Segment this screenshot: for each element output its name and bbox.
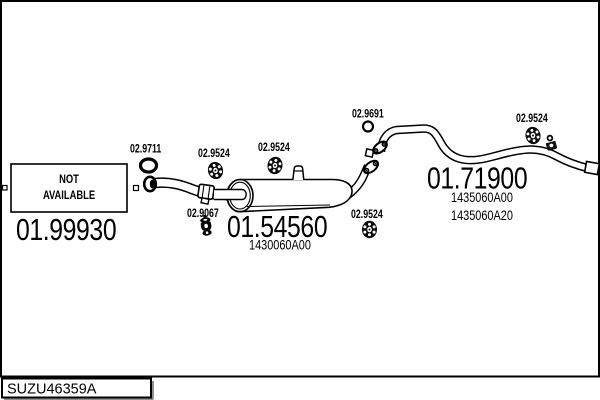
part-number-clamp-mid[interactable]: 02.9524	[258, 141, 290, 155]
front-exhaust-group: NOT AVAILABLE 01.99930	[11, 164, 127, 247]
gasket-ring-icon-rear	[363, 122, 373, 132]
part-number-front-exhaust[interactable]: 01.99930	[16, 212, 116, 246]
pipe-sleeve-clamp-icon	[198, 184, 215, 199]
clamp-icon-tail	[524, 125, 542, 145]
part-number-rear-gasket[interactable]: 02.9691	[352, 107, 384, 121]
clamp-icon-rear	[362, 221, 377, 238]
part-number-clamp-tail[interactable]: 02.9524	[516, 112, 548, 126]
not-available-text-line1: NOT	[59, 173, 79, 186]
clamp-bolt-icon	[201, 198, 209, 204]
exhaust-parts-diagram: NOT AVAILABLE 01.99930 02.9711 02.9524 0…	[0, 0, 600, 400]
part-number-clamp-front[interactable]: 02.9524	[198, 147, 230, 161]
muffler-drawing	[214, 166, 352, 212]
front-pipe-opening-icon	[150, 180, 155, 189]
part-number-clamp-rear[interactable]: 02.9524	[351, 208, 383, 222]
tailpipe-tip-icon	[585, 161, 600, 174]
connector-square-right	[134, 186, 139, 191]
oem-number-tailpipe-2[interactable]: 1435060A20	[451, 208, 513, 224]
flange-joint-drawing	[362, 139, 389, 176]
diagram-code-box: SUZU46359A	[2, 379, 153, 400]
oem-number-tailpipe-1[interactable]: 1435060A00	[451, 190, 513, 206]
oem-number-muffler[interactable]: 1430060A00	[249, 237, 311, 253]
diagram-code: SUZU46359A	[7, 382, 97, 398]
muffler-bracket-icon	[293, 166, 304, 180]
clamp-icon-front	[206, 160, 225, 181]
gasket-ring-icon-front	[141, 159, 157, 172]
muffler-inlet-pipe-icon	[214, 190, 246, 200]
clamp-icon-mid	[266, 156, 284, 176]
not-available-text-line2: AVAILABLE	[43, 189, 95, 202]
part-number-front-gasket[interactable]: 02.9711	[130, 142, 161, 156]
connector-square-left	[3, 186, 8, 191]
